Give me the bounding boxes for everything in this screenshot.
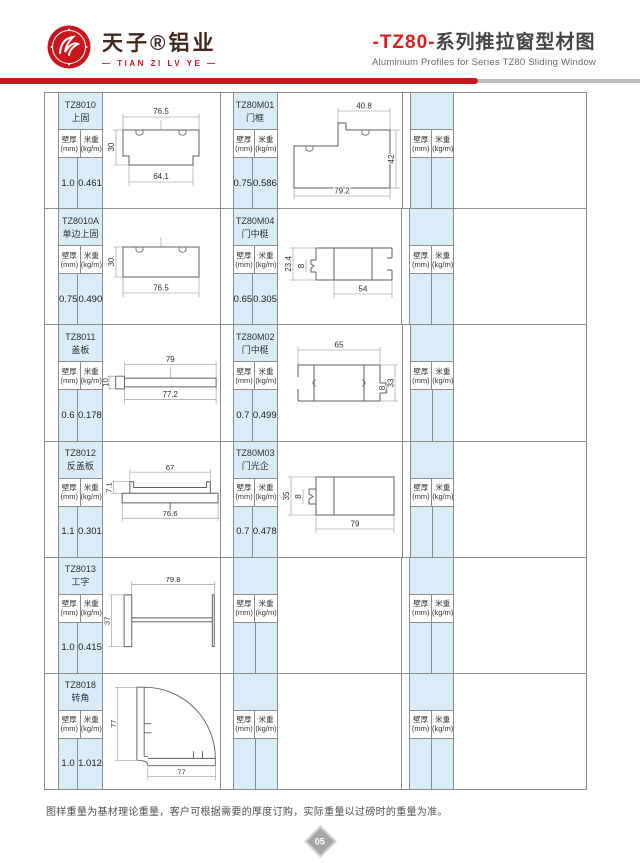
col-header-thickness: 壁厚(mm): [59, 246, 80, 273]
profile-info-blank: 壁厚(mm) 米重(kg/m): [233, 674, 278, 789]
profile-info-tz80m04: TZ80M04 门中梃 壁厚(mm) 米重(kg/m) 0.65 0.305: [233, 209, 278, 324]
col-header-weight: 米重(kg/m): [431, 130, 453, 157]
col-header-thickness: 壁厚(mm): [59, 595, 80, 622]
col-header-weight: 米重(kg/m): [80, 595, 102, 622]
dim-label: 54: [358, 284, 367, 293]
dim-label: 79.8: [165, 575, 180, 584]
profile-title: [410, 209, 453, 246]
profile-code: TZ8010: [59, 100, 102, 110]
profile-title: TZ8018 转角: [59, 674, 102, 711]
profile-title: [410, 674, 453, 711]
dim-label: 79.2: [334, 186, 350, 195]
weight-value: 1.012: [77, 739, 102, 789]
page-subtitle: Aluminium Profiles for Series TZ80 Slidi…: [372, 57, 596, 68]
profile-info-blank: 壁厚(mm) 米重(kg/m): [409, 674, 454, 789]
profile-name: 门框: [234, 113, 277, 123]
thickness-value: 0.65: [234, 274, 253, 324]
col-header-weight: 米重(kg/m): [80, 130, 102, 157]
profile-code: TZ80M01: [234, 100, 277, 110]
profile-title: TZ80M03 门光企: [234, 442, 277, 479]
profile-info-blank: 壁厚(mm) 米重(kg/m): [233, 558, 278, 673]
profile-title: [234, 674, 277, 711]
col-header-thickness: 壁厚(mm): [59, 711, 80, 738]
col-header-thickness: 壁厚(mm): [59, 479, 80, 506]
dim-label: 40.8: [356, 101, 372, 110]
weight-value: 0.178: [77, 390, 102, 440]
col-header-thickness: 壁厚(mm): [411, 479, 432, 506]
weight-value: 0.305: [252, 274, 277, 324]
page-number-wrap: 05: [0, 830, 640, 853]
profile-info-blank: 壁厚(mm) 米重(kg/m): [409, 209, 454, 324]
thickness-value: 1.0: [59, 158, 77, 208]
drawing-empty: [454, 442, 586, 557]
profile-name: 上固: [59, 113, 102, 123]
drawing-tz80m02: 65 8 33: [278, 325, 403, 440]
profile-code: TZ8011: [59, 332, 102, 342]
profile-code: TZ8010A: [59, 216, 102, 226]
col-header-weight: 米重(kg/m): [80, 711, 102, 738]
drawing-tz8012: 67 7.1 76.6: [103, 442, 221, 557]
drawing-tz80m04: 23.4 8 54: [278, 209, 403, 324]
profile-code: TZ80M03: [234, 448, 277, 458]
profile-title: [411, 93, 454, 130]
drawing-tz80m01: 40.8 42 79.2: [278, 93, 403, 208]
profile-title: TZ8010 上固: [59, 93, 102, 130]
col-header-thickness: 壁厚(mm): [59, 362, 80, 389]
drawing-empty: [454, 674, 586, 789]
dim-label: 79: [166, 355, 175, 364]
col-header-weight: 米重(kg/m): [254, 479, 276, 506]
profile-title: [411, 442, 454, 479]
profile-code: TZ80M02: [234, 332, 277, 342]
profile-name: 门中梃: [234, 345, 277, 355]
profile-title: [410, 558, 453, 595]
thickness-value: 0.7: [234, 507, 252, 557]
col-header-thickness: 壁厚(mm): [410, 246, 431, 273]
drawing-empty: [454, 209, 586, 324]
dim-label: 37: [103, 617, 112, 626]
col-header-thickness: 壁厚(mm): [234, 479, 255, 506]
dim-label: 77.2: [162, 390, 177, 399]
series-code: -TZ80-: [373, 32, 436, 53]
col-header-weight: 米重(kg/m): [254, 246, 276, 273]
col-header-weight: 米重(kg/m): [431, 595, 453, 622]
dim-label: 65: [334, 340, 343, 349]
dim-label: 77: [177, 768, 185, 777]
profile-info-blank: 壁厚(mm) 米重(kg/m): [410, 93, 455, 208]
col-header-weight: 米重(kg/m): [254, 595, 276, 622]
col-header-weight: 米重(kg/m): [80, 362, 102, 389]
weight-value: 0.415: [77, 623, 102, 673]
profile-info-blank: 壁厚(mm) 米重(kg/m): [410, 325, 455, 440]
col-header-weight: 米重(kg/m): [80, 246, 102, 273]
col-header-thickness: 壁厚(mm): [234, 595, 255, 622]
weight-value: 0.301: [77, 507, 102, 557]
profile-code: TZ8012: [59, 448, 102, 458]
table-row: TZ8018 转角 壁厚(mm) 米重(kg/m) 1.0 1.012 77 7…: [45, 674, 586, 789]
brand-seal-icon: [46, 24, 92, 70]
profile-title: TZ8012 反盖板: [59, 442, 102, 479]
page-number-badge: 05: [304, 825, 337, 858]
col-header-weight: 米重(kg/m): [431, 362, 453, 389]
thickness-value: 0.75: [234, 158, 253, 208]
profile-info-tz80m03: TZ80M03 门光企 壁厚(mm) 米重(kg/m) 0.7 0.478: [233, 442, 278, 557]
dim-label: 35: [282, 491, 291, 500]
thickness-value: 0.75: [59, 274, 78, 324]
weight-value: 0.499: [252, 390, 277, 440]
dim-label: 7.1: [104, 482, 113, 493]
footer-note: 图样重量为基材理论重量，客户可根据需要的厚度订购，实际重量以过磅时的重量为准。: [46, 803, 640, 818]
profile-title: TZ80M01 门框: [234, 93, 277, 130]
col-header-thickness: 壁厚(mm): [234, 130, 255, 157]
thickness-value: 1.1: [59, 507, 77, 557]
table-row: TZ8010 上固 壁厚(mm) 米重(kg/m) 1.0 0.461 76.5…: [45, 93, 586, 209]
dim-label: 79: [350, 520, 359, 529]
col-header-thickness: 壁厚(mm): [411, 362, 432, 389]
profile-title: TZ80M04 门中梃: [234, 209, 277, 246]
weight-value: 0.478: [252, 507, 277, 557]
col-header-weight: 米重(kg/m): [254, 711, 276, 738]
profile-table: TZ8010 上固 壁厚(mm) 米重(kg/m) 1.0 0.461 76.5…: [44, 92, 587, 790]
profile-info-tz8010: TZ8010 上固 壁厚(mm) 米重(kg/m) 1.0 0.461: [58, 93, 103, 208]
profile-info-tz8013: TZ8013 工字 壁厚(mm) 米重(kg/m) 1.0 0.415: [58, 558, 103, 673]
thickness-value: 1.0: [59, 739, 77, 789]
col-header-thickness: 壁厚(mm): [410, 711, 431, 738]
drawing-empty: [454, 325, 586, 440]
profile-title: TZ8010A 单边上固: [59, 209, 102, 246]
drawing-tz8010: 76.5 30 64.1: [103, 93, 221, 208]
drawing-tz8010a: 30 76.5: [103, 209, 221, 324]
page-title: 系列推拉窗型材图: [436, 32, 596, 53]
table-row: TZ8010A 单边上固 壁厚(mm) 米重(kg/m) 0.75 0.490 …: [45, 209, 586, 325]
weight-value: 0.490: [77, 274, 102, 324]
drawing-tz80m03: 35 8 79: [278, 442, 403, 557]
col-header-thickness: 壁厚(mm): [59, 130, 80, 157]
dim-label: 30: [107, 257, 116, 266]
table-row: TZ8011 盖板 壁厚(mm) 米重(kg/m) 0.6 0.178 79 1…: [45, 325, 586, 441]
dim-label: 23.4: [284, 255, 293, 271]
col-header-weight: 米重(kg/m): [431, 479, 453, 506]
drawing-tz8011: 79 10 77.2: [103, 325, 221, 440]
profile-info-tz8011: TZ8011 盖板 壁厚(mm) 米重(kg/m) 0.6 0.178: [58, 325, 103, 440]
drawing-empty: [278, 674, 403, 789]
brand-logo: 天子®铝业 — TIAN ZI LV YE —: [46, 24, 218, 70]
profile-info-tz80m02: TZ80M02 门中梃 壁厚(mm) 米重(kg/m) 0.7 0.499: [233, 325, 278, 440]
profile-info-tz8012: TZ8012 反盖板 壁厚(mm) 米重(kg/m) 1.1 0.301: [58, 442, 103, 557]
profile-title: TZ8011 盖板: [59, 325, 102, 362]
dim-label: 10: [103, 377, 110, 386]
table-row: TZ8012 反盖板 壁厚(mm) 米重(kg/m) 1.1 0.301 67 …: [45, 442, 586, 558]
profile-code: TZ8018: [59, 680, 102, 690]
drawing-tz8013: 79.8 37: [103, 558, 221, 673]
dim-label: 64.1: [153, 172, 169, 181]
drawing-tz8018: 77 77: [103, 674, 221, 789]
col-header-thickness: 壁厚(mm): [234, 246, 255, 273]
divider-bar-red: [0, 78, 478, 84]
brand-name: 天子®铝业: [102, 27, 218, 57]
table-row: TZ8013 工字 壁厚(mm) 米重(kg/m) 1.0 0.415 79.8…: [45, 558, 586, 674]
profile-info-blank: 壁厚(mm) 米重(kg/m): [410, 442, 455, 557]
page-title-block: -TZ80-系列推拉窗型材图 Aluminium Profiles for Se…: [372, 27, 596, 68]
profile-title: [411, 325, 454, 362]
dim-label: 8: [294, 494, 303, 499]
divider-bar: [0, 78, 640, 84]
profile-info-blank: 壁厚(mm) 米重(kg/m): [409, 558, 454, 673]
profile-title: TZ8013 工字: [59, 558, 102, 595]
profile-info-tz8018: TZ8018 转角 壁厚(mm) 米重(kg/m) 1.0 1.012: [58, 674, 103, 789]
dim-label: 76.5: [153, 107, 169, 116]
col-header-thickness: 壁厚(mm): [411, 130, 432, 157]
dim-label: 77: [109, 720, 118, 728]
page-header: 天子®铝业 — TIAN ZI LV YE — -TZ80-系列推拉窗型材图 A…: [0, 0, 640, 76]
dim-label: 76.5: [154, 283, 170, 292]
col-header-weight: 米重(kg/m): [431, 711, 453, 738]
profile-name: 门中梃: [234, 229, 277, 239]
profile-info-tz80m01: TZ80M01 门框 壁厚(mm) 米重(kg/m) 0.75 0.586: [233, 93, 278, 208]
brand-name-en: — TIAN ZI LV YE —: [102, 59, 218, 68]
drawing-empty: [454, 93, 586, 208]
col-header-thickness: 壁厚(mm): [410, 595, 431, 622]
weight-value: 0.461: [77, 158, 102, 208]
dim-label: 8: [297, 263, 306, 268]
profile-title: [234, 558, 277, 595]
profile-name: 工字: [59, 577, 102, 587]
thickness-value: 1.0: [59, 623, 77, 673]
profile-code: TZ8013: [59, 564, 102, 574]
profile-name: 转角: [59, 693, 102, 703]
dim-label: 67: [166, 463, 175, 472]
col-header-thickness: 壁厚(mm): [234, 362, 255, 389]
thickness-value: 0.6: [59, 390, 77, 440]
thickness-value: 0.7: [234, 390, 252, 440]
profile-code: TZ80M04: [234, 216, 277, 226]
dim-label: 30: [107, 142, 116, 151]
profile-name: 单边上固: [59, 229, 102, 239]
profile-title: TZ80M02 门中梃: [234, 325, 277, 362]
col-header-weight: 米重(kg/m): [80, 479, 102, 506]
col-header-thickness: 壁厚(mm): [234, 711, 255, 738]
col-header-weight: 米重(kg/m): [254, 362, 276, 389]
col-header-weight: 米重(kg/m): [254, 130, 276, 157]
profile-name: 门光企: [234, 461, 277, 471]
weight-value: 0.586: [252, 158, 277, 208]
profile-info-tz8010a: TZ8010A 单边上固 壁厚(mm) 米重(kg/m) 0.75 0.490: [58, 209, 103, 324]
col-header-weight: 米重(kg/m): [431, 246, 453, 273]
drawing-empty: [278, 558, 403, 673]
profile-name: 盖板: [59, 345, 102, 355]
dim-label: 33: [386, 378, 395, 387]
page-number: 05: [315, 836, 325, 846]
dim-label: 42: [387, 154, 396, 163]
profile-name: 反盖板: [59, 461, 102, 471]
drawing-empty: [454, 558, 586, 673]
dim-label: 76.6: [162, 509, 177, 518]
